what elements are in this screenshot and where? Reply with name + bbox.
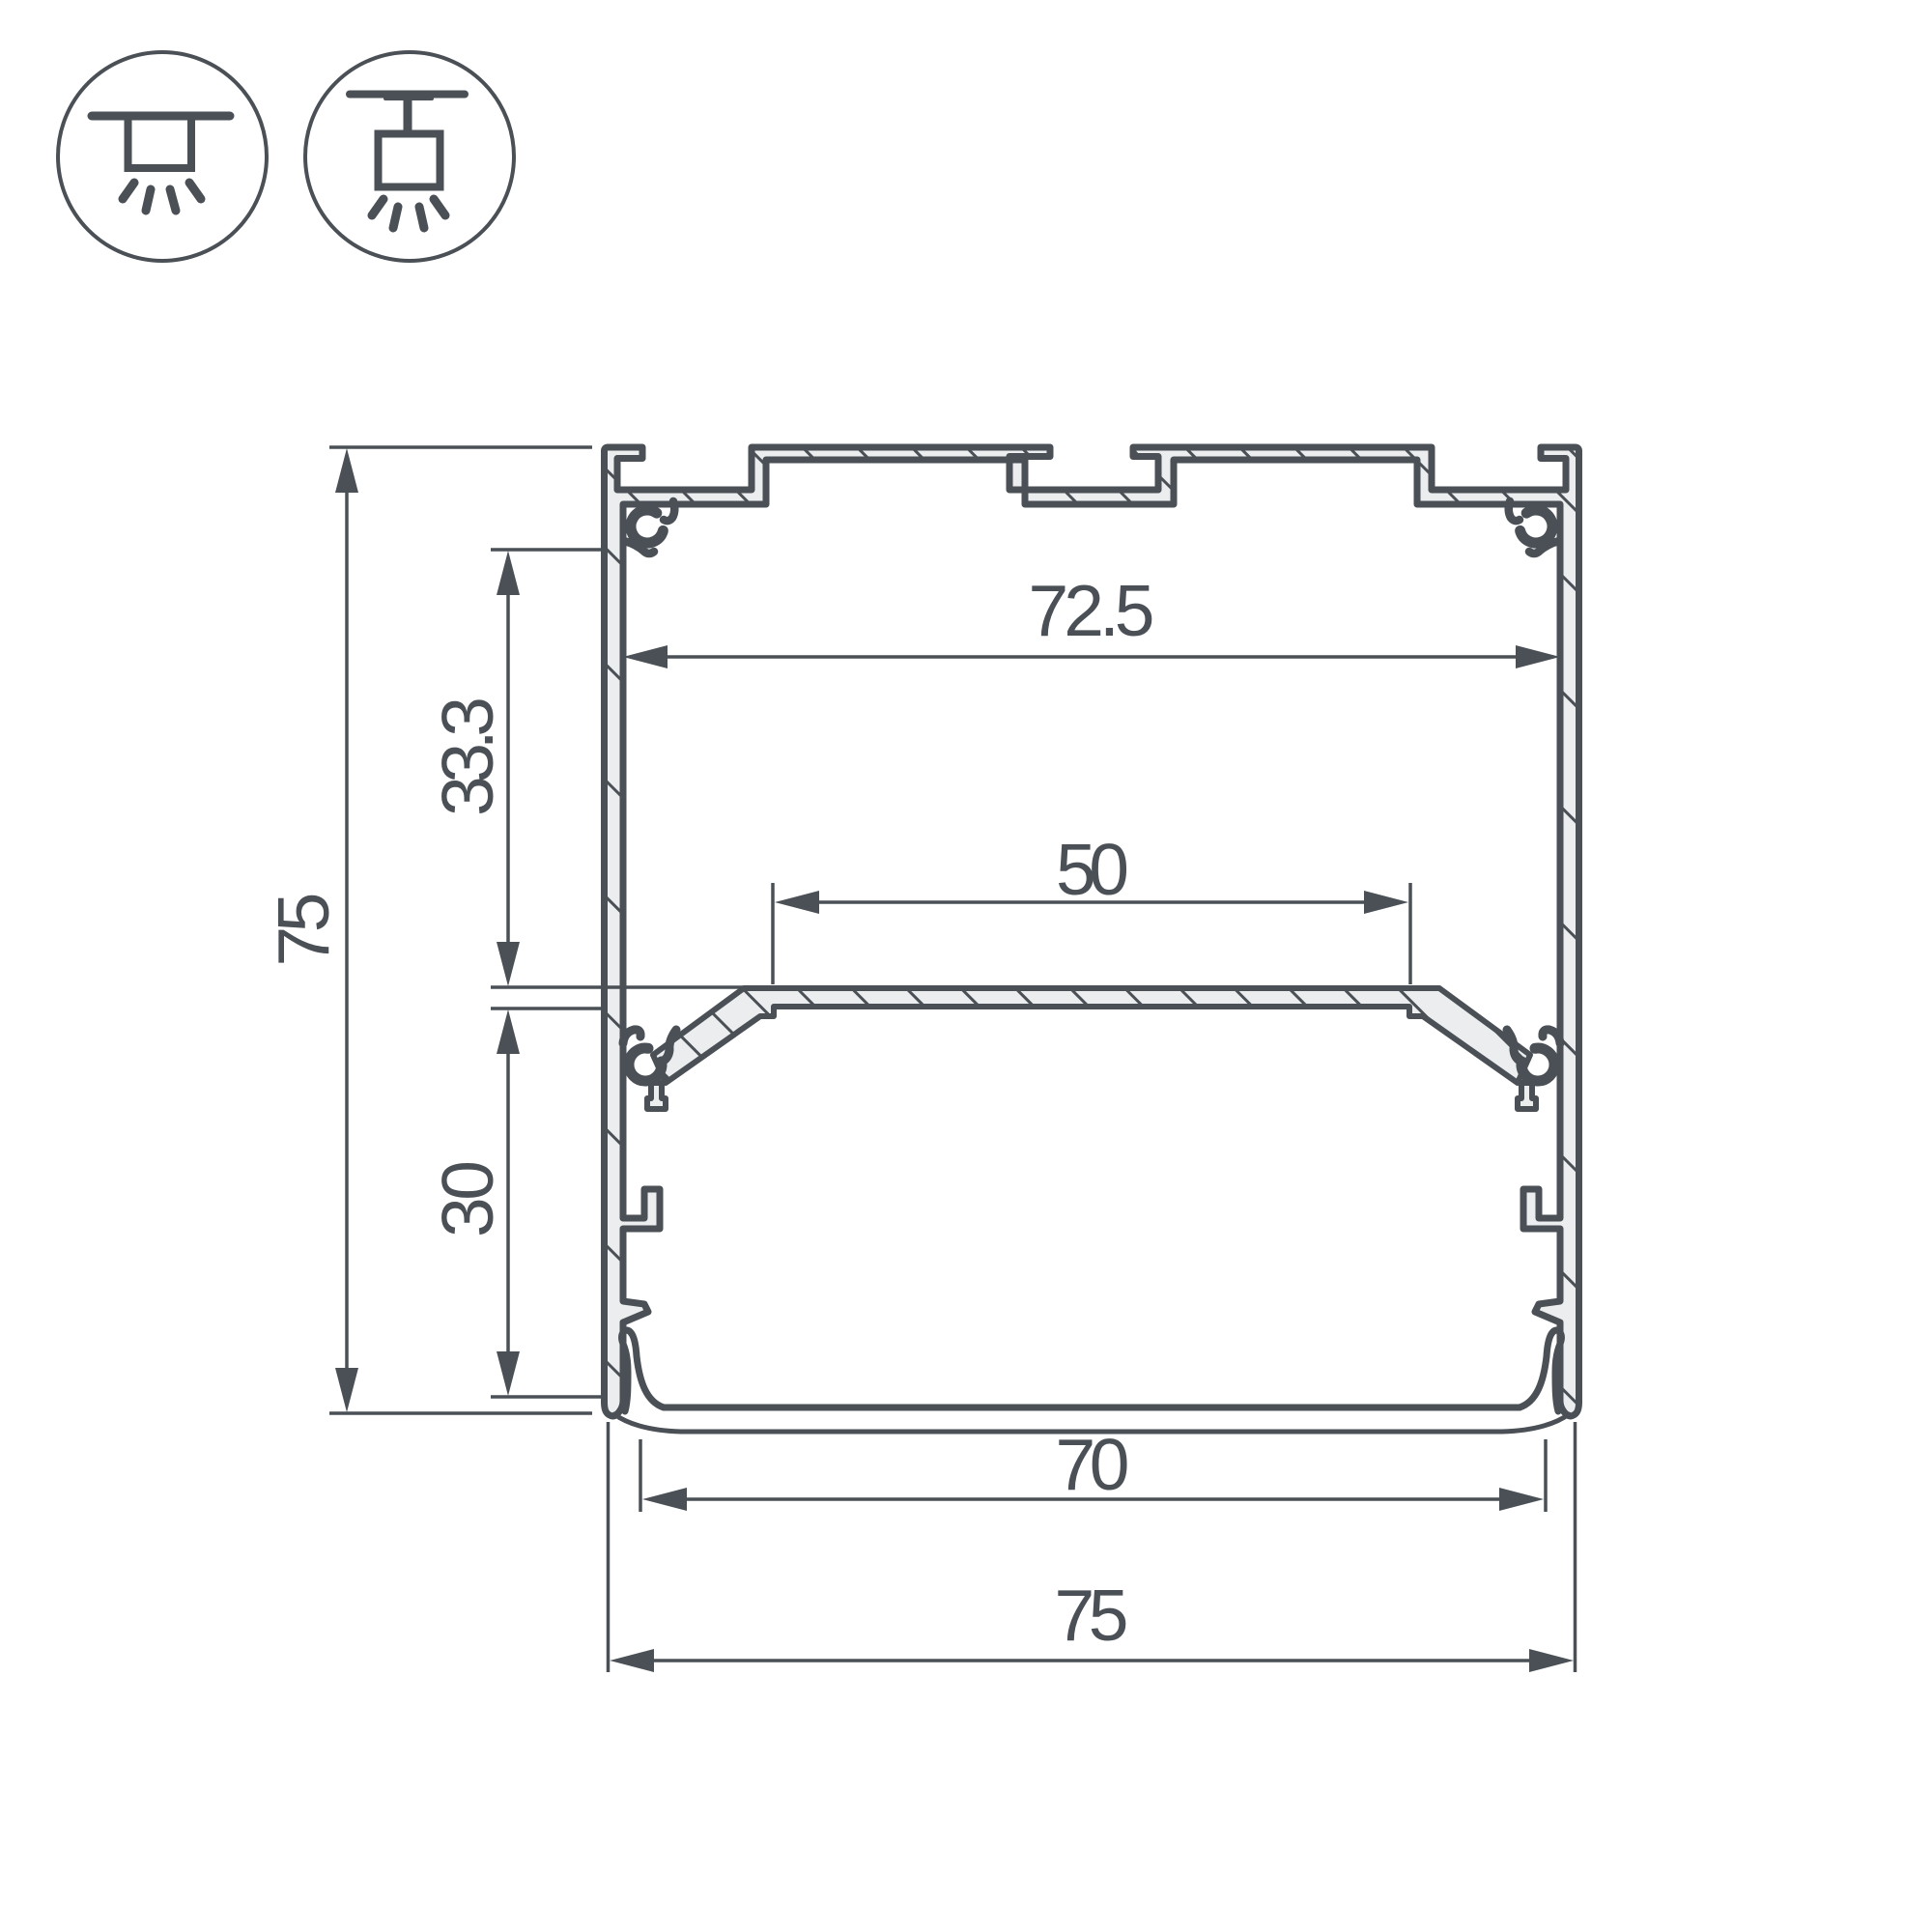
svg-text:50: 50: [1056, 829, 1129, 910]
svg-text:70: 70: [1056, 1424, 1130, 1505]
svg-text:30: 30: [427, 1160, 508, 1237]
svg-text:75: 75: [263, 893, 344, 967]
svg-text:33.3: 33.3: [427, 696, 508, 816]
svg-text:75: 75: [1055, 1575, 1129, 1656]
svg-text:72.5: 72.5: [1029, 570, 1155, 651]
